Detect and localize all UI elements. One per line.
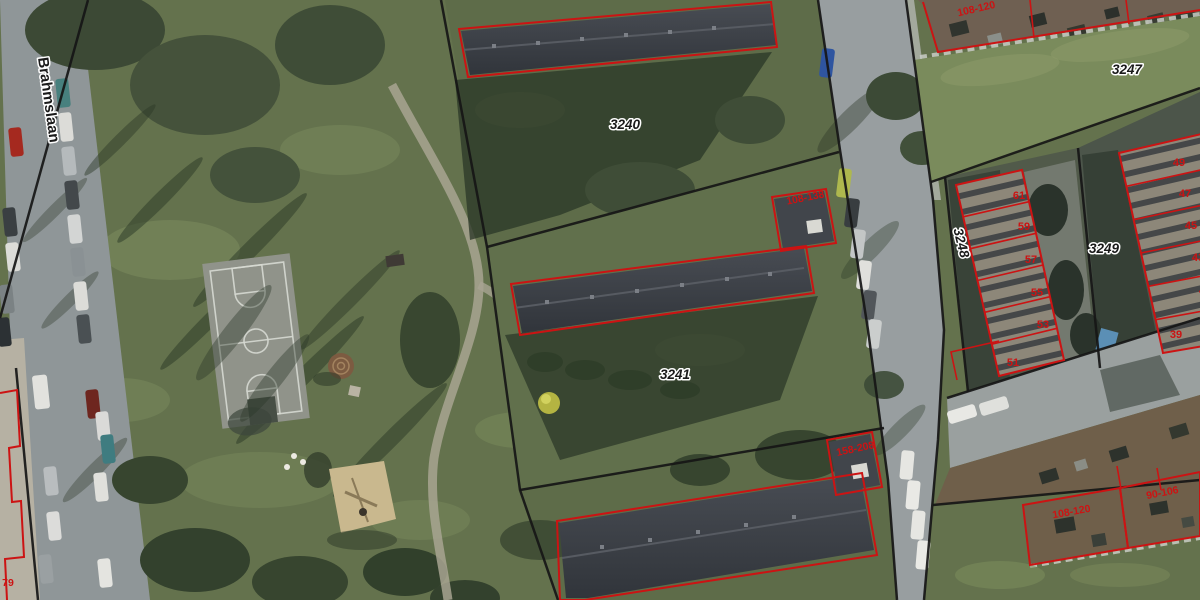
- address-range: 79: [2, 577, 14, 589]
- map-viewport[interactable]: 61 59 57 55 53 51 49 47 45 43 41 39 108-…: [0, 0, 1200, 600]
- house-number: 49: [1173, 157, 1185, 169]
- parcel-label-3247: 3247: [1112, 62, 1144, 77]
- house-number: 45: [1185, 220, 1197, 232]
- house-number: 57: [1025, 254, 1037, 266]
- parcel-label-3241: 3241: [660, 367, 690, 382]
- house-number: 51: [1007, 357, 1019, 369]
- house-number: 59: [1018, 221, 1030, 233]
- parcel-label-3249: 3249: [1089, 241, 1120, 256]
- house-number: 43: [1192, 252, 1200, 264]
- house-number: 55: [1031, 287, 1043, 299]
- house-number: 39: [1170, 329, 1182, 341]
- house-number: 53: [1037, 319, 1049, 331]
- parcel-label-3240: 3240: [610, 117, 641, 132]
- house-number: 47: [1179, 188, 1191, 200]
- aerial-map: 61 59 57 55 53 51 49 47 45 43 41 39 108-…: [0, 0, 1200, 600]
- house-number: 61: [1013, 190, 1025, 202]
